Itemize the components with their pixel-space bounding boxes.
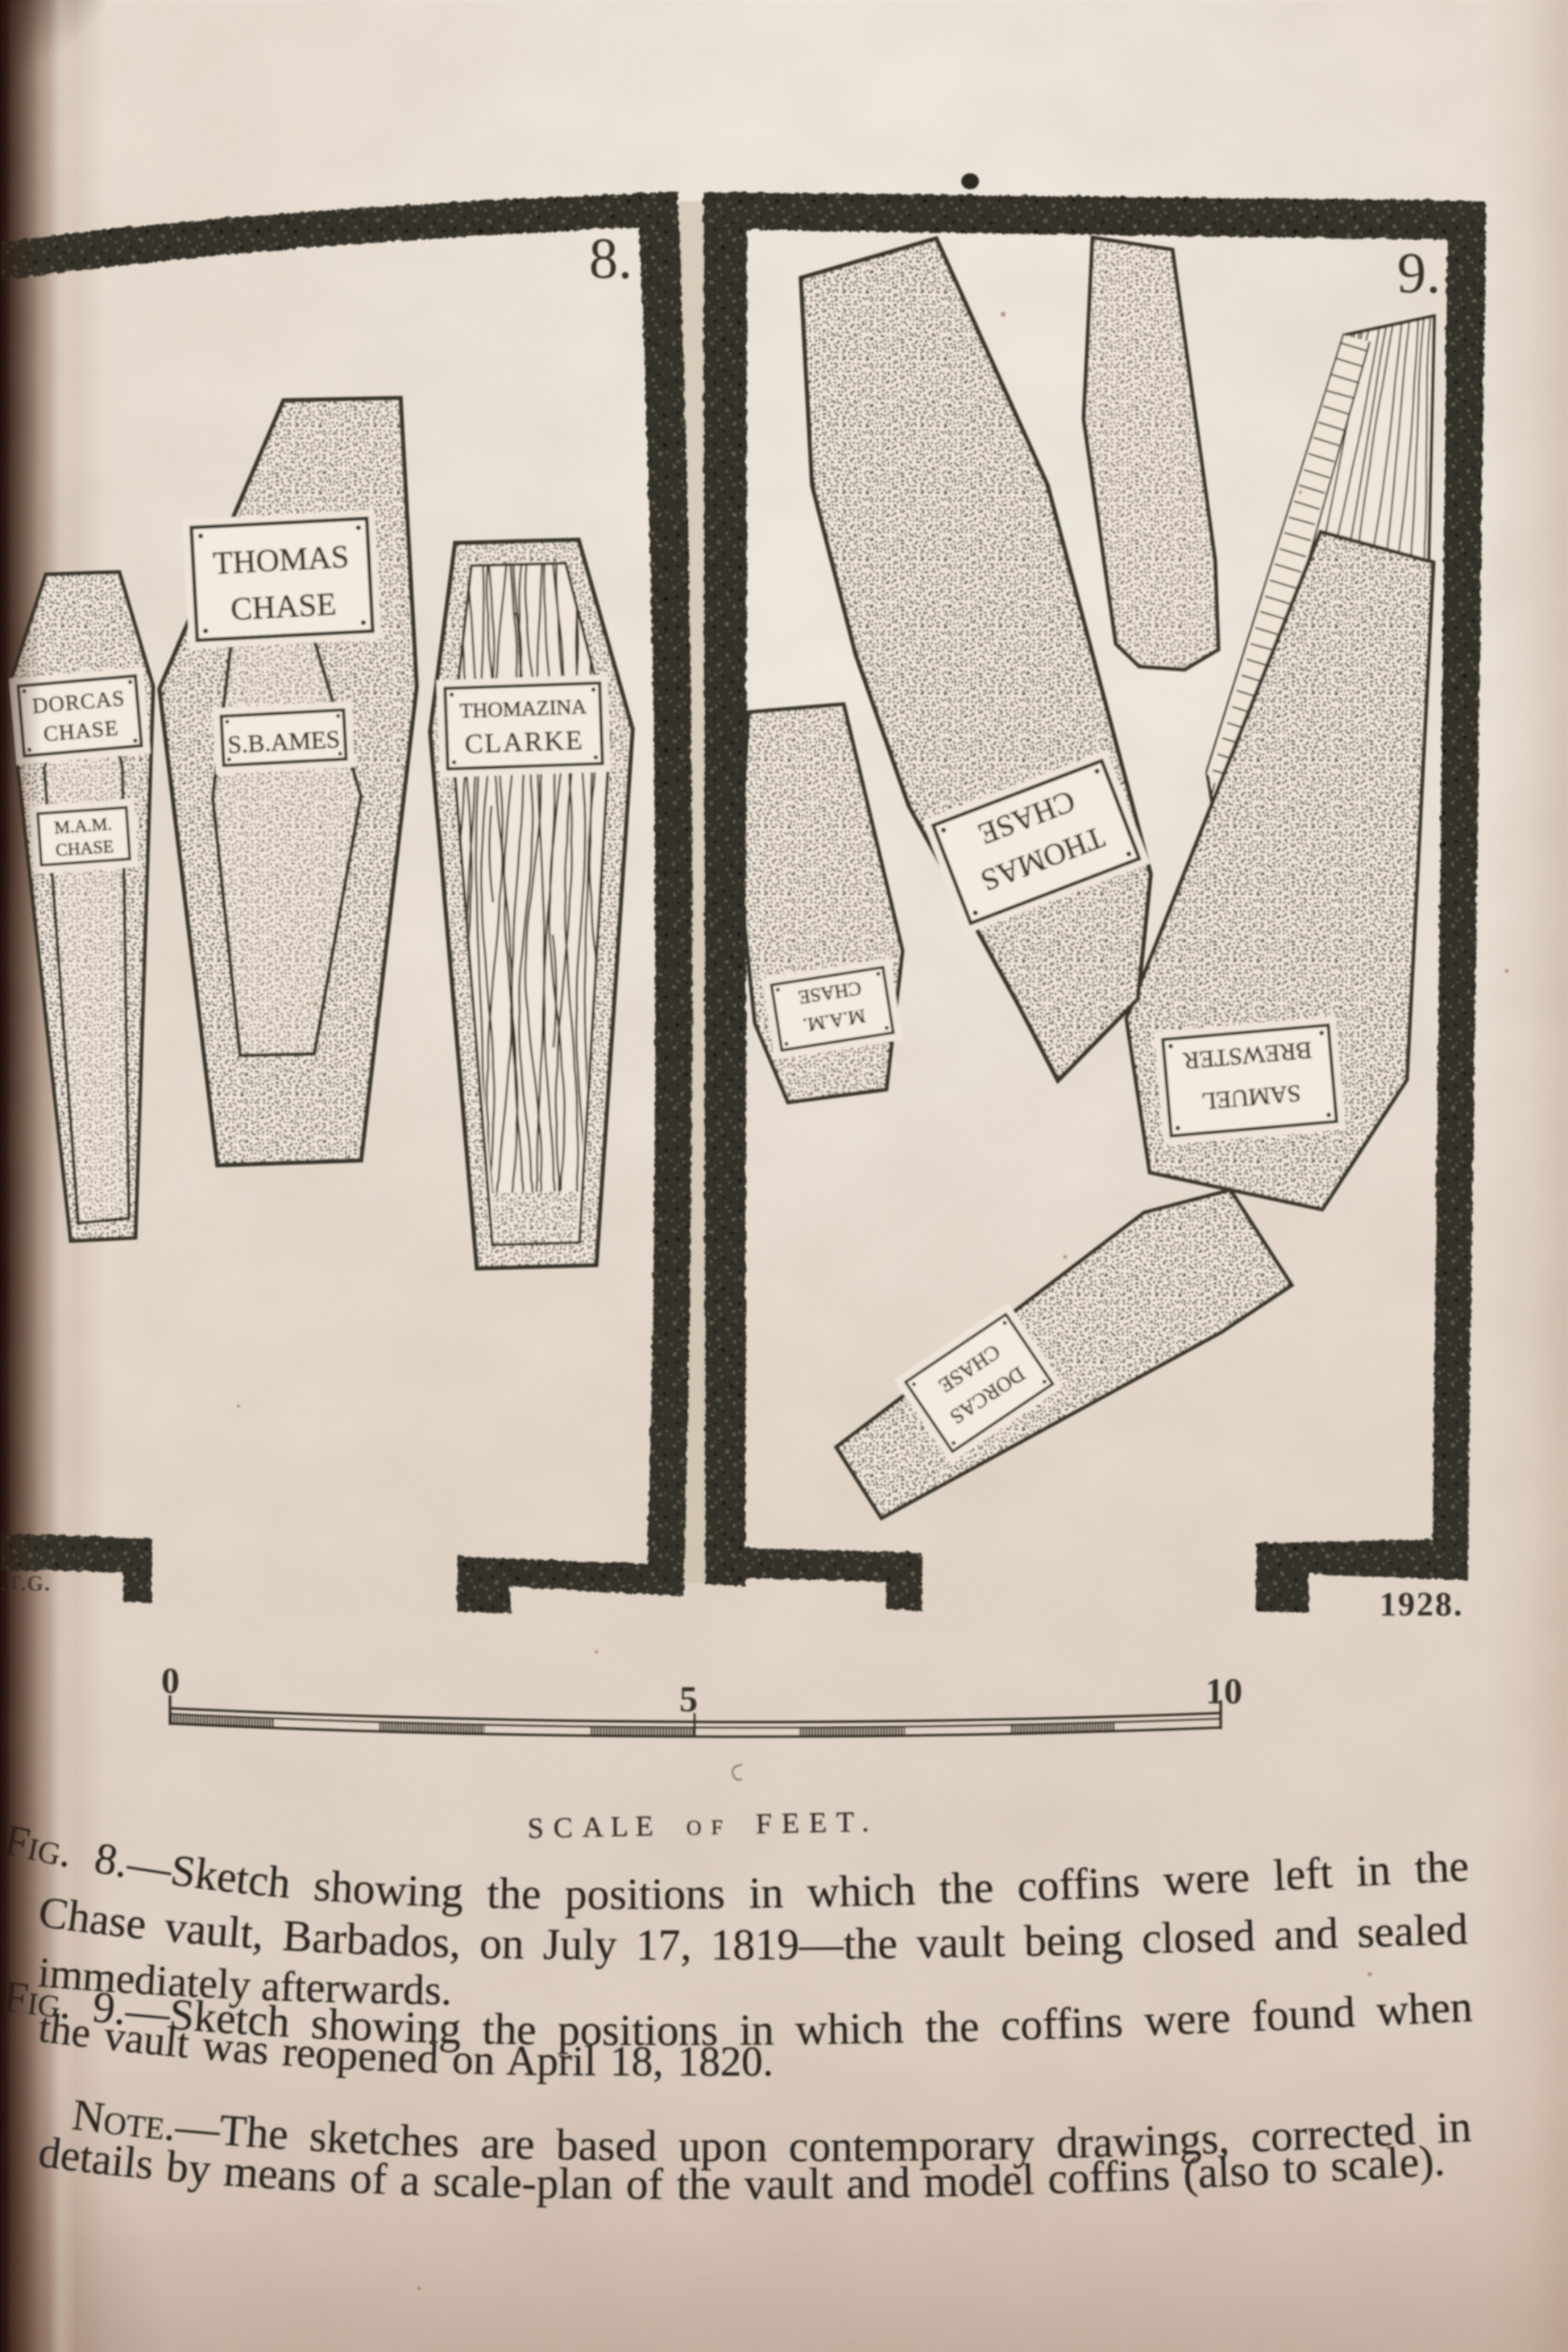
svg-text:THOMAZINA: THOMAZINA	[459, 695, 587, 722]
svg-text:CLARKE: CLARKE	[464, 725, 584, 759]
svg-text:CHASE: CHASE	[55, 836, 114, 860]
svg-text:THOMAS: THOMAS	[212, 538, 350, 582]
svg-text:10: 10	[1205, 1670, 1242, 1711]
svg-text:9.: 9.	[1397, 241, 1441, 305]
svg-text:0: 0	[161, 1660, 180, 1701]
svg-text:M.A.M.: M.A.M.	[54, 813, 113, 837]
svg-text:1928.: 1928.	[1379, 1587, 1464, 1624]
svg-text:CHASE: CHASE	[230, 586, 337, 628]
svg-text:5: 5	[679, 1678, 698, 1719]
svg-text:S.B.AMES: S.B.AMES	[227, 724, 341, 758]
svg-text:8.: 8.	[589, 226, 633, 291]
